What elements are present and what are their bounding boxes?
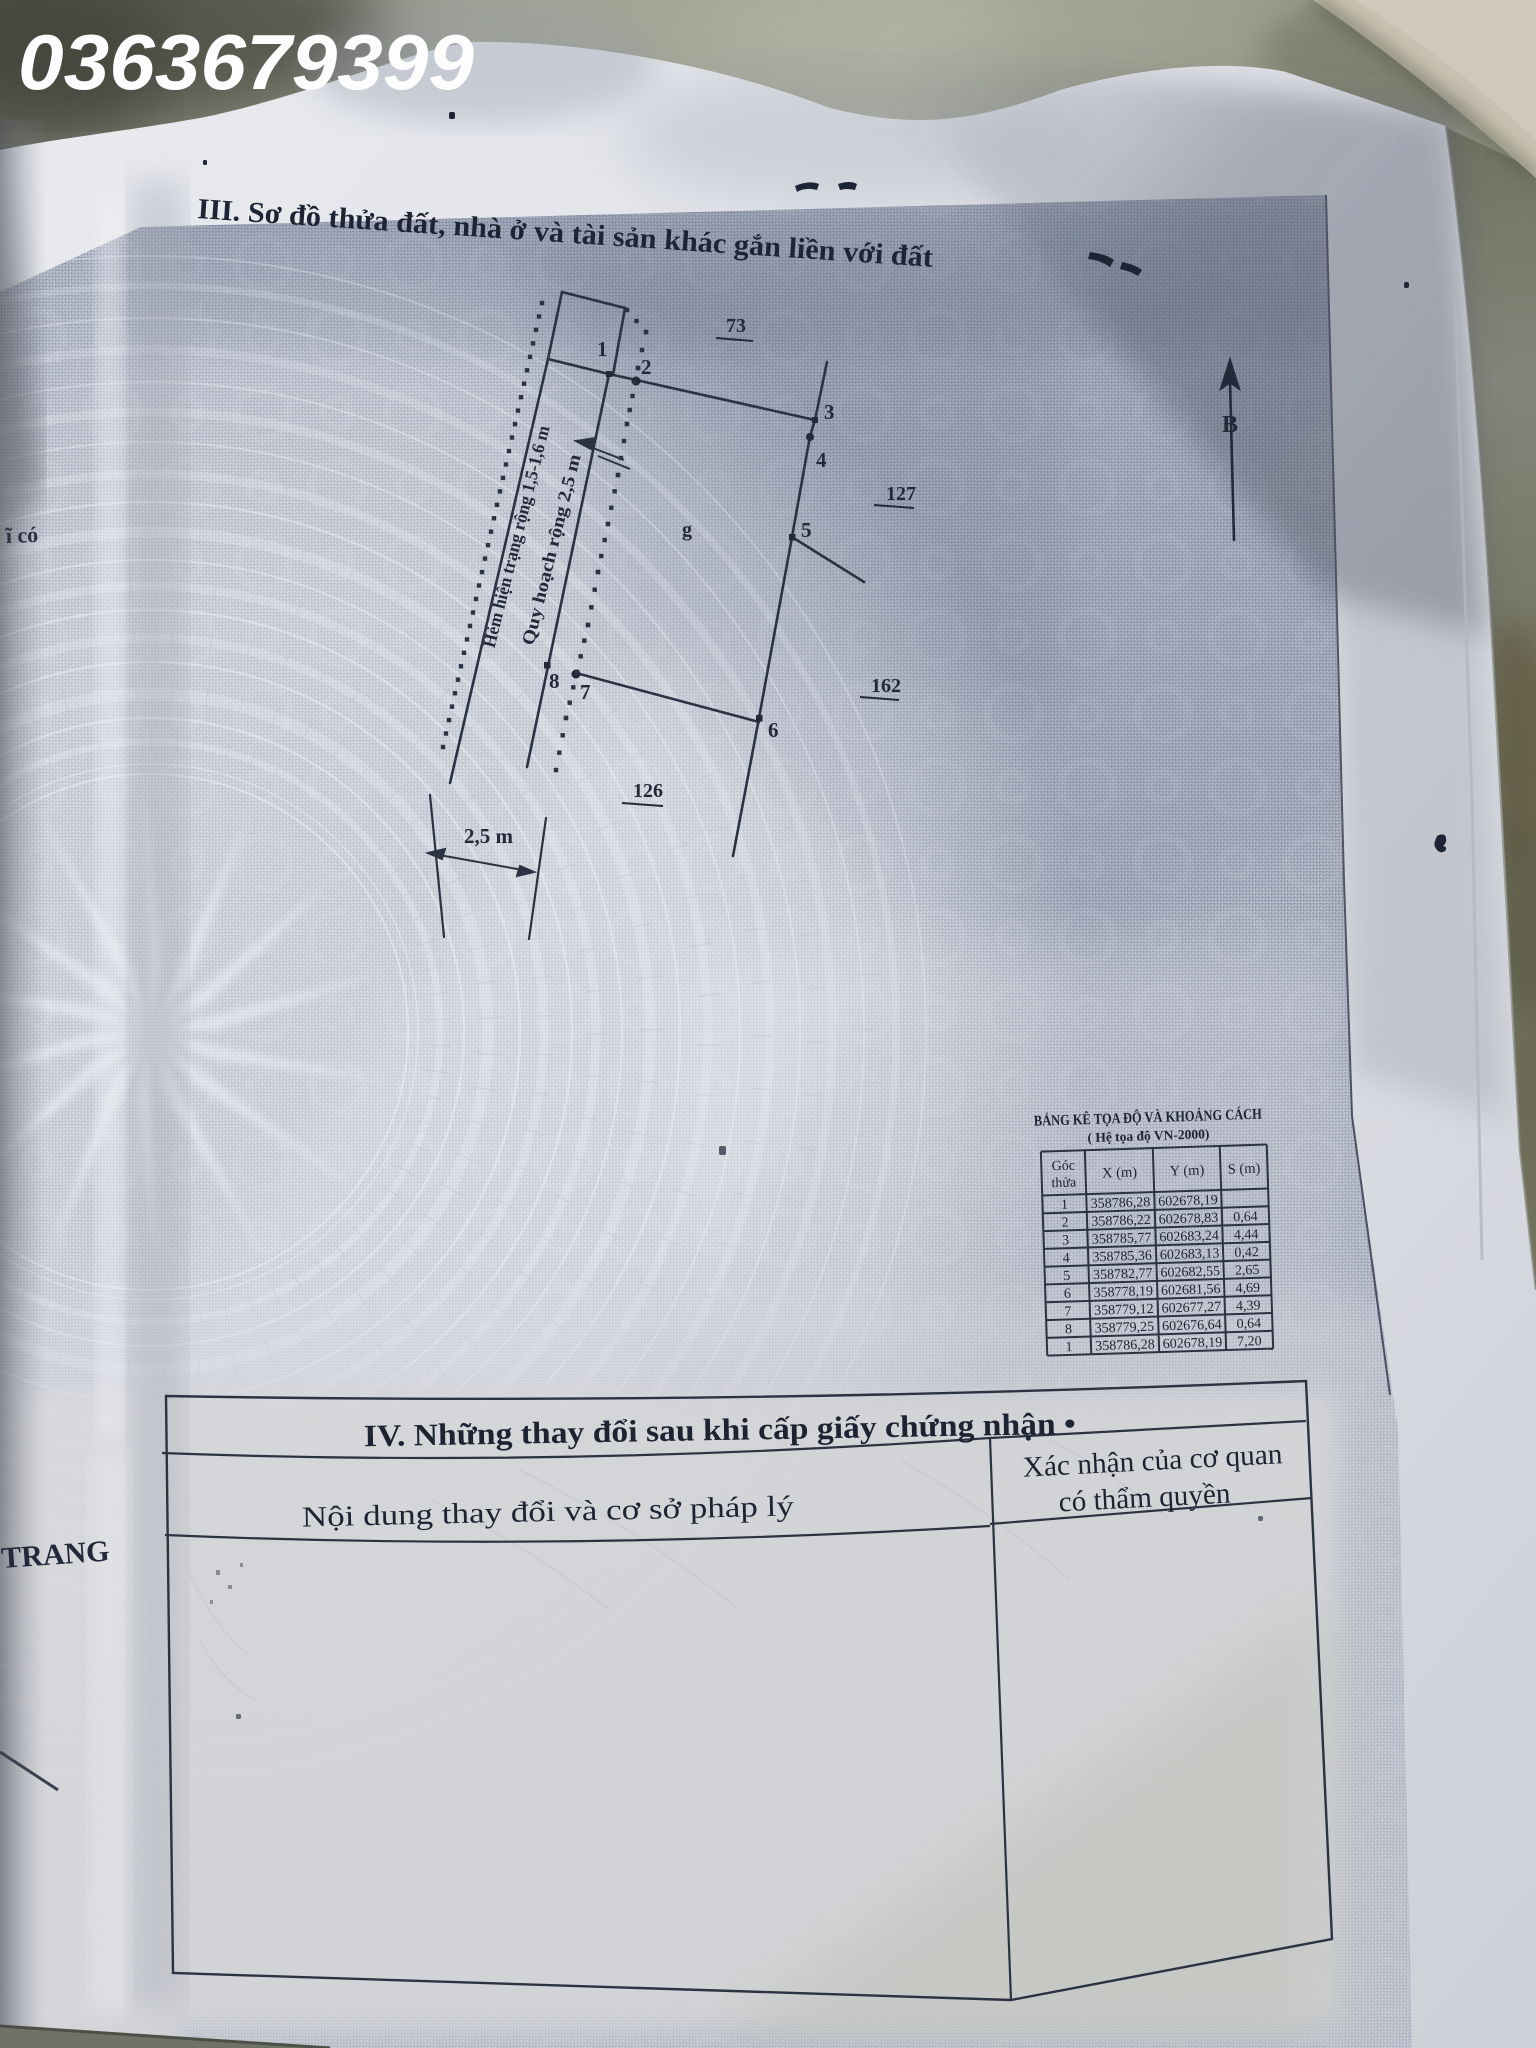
svg-text:602682,55: 602682,55	[1160, 1264, 1220, 1281]
svg-text:B: B	[1222, 412, 1238, 438]
svg-text:162: 162	[871, 675, 901, 697]
svg-text:602683,24: 602683,24	[1159, 1229, 1219, 1246]
svg-text:3: 3	[1062, 1233, 1069, 1248]
svg-text:6: 6	[768, 718, 779, 742]
svg-text:3: 3	[824, 400, 835, 424]
svg-text:0363679399: 0363679399	[18, 18, 475, 106]
svg-text:602678,83: 602678,83	[1159, 1211, 1219, 1228]
svg-text:602678,19: 602678,19	[1162, 1335, 1222, 1352]
svg-text:thửa: thửa	[1051, 1175, 1077, 1191]
svg-text:S (m): S (m)	[1227, 1161, 1260, 1178]
svg-text:358785,77: 358785,77	[1092, 1231, 1152, 1248]
svg-text:358782,77: 358782,77	[1093, 1266, 1153, 1283]
svg-text:4,44: 4,44	[1234, 1227, 1259, 1243]
svg-text:358786,22: 358786,22	[1091, 1213, 1151, 1230]
svg-text:358785,36: 358785,36	[1092, 1249, 1152, 1266]
svg-text:7: 7	[580, 680, 591, 704]
svg-text:7: 7	[1064, 1304, 1071, 1319]
svg-text:1: 1	[1061, 1198, 1068, 1213]
svg-text:602681,56: 602681,56	[1161, 1282, 1221, 1299]
svg-text:4: 4	[1062, 1251, 1069, 1266]
svg-text:ĩ có: ĩ có	[4, 522, 38, 548]
svg-text:5: 5	[801, 518, 812, 542]
svg-text:602683,13: 602683,13	[1160, 1246, 1220, 1263]
svg-text:5: 5	[1063, 1269, 1070, 1284]
svg-text:7,20: 7,20	[1237, 1334, 1262, 1350]
svg-text:0,42: 0,42	[1234, 1245, 1259, 1261]
svg-text:358786,28: 358786,28	[1095, 1337, 1155, 1354]
svg-text:0,64: 0,64	[1236, 1316, 1261, 1332]
svg-text:Góc: Góc	[1051, 1159, 1075, 1175]
svg-text:4,39: 4,39	[1236, 1299, 1261, 1315]
svg-text:1: 1	[1065, 1340, 1072, 1355]
svg-text:Y (m): Y (m)	[1170, 1162, 1205, 1179]
svg-text:4: 4	[816, 448, 827, 472]
svg-text:602677,27: 602677,27	[1161, 1300, 1221, 1317]
svg-text:1: 1	[597, 337, 608, 361]
svg-text:358779,12: 358779,12	[1094, 1302, 1154, 1319]
svg-text:602678,19: 602678,19	[1158, 1193, 1218, 1210]
svg-text:2: 2	[1061, 1216, 1068, 1231]
svg-text:73: 73	[726, 315, 746, 337]
svg-text:358778,19: 358778,19	[1093, 1284, 1153, 1301]
svg-text:8: 8	[549, 669, 560, 693]
svg-text:358786,28: 358786,28	[1091, 1195, 1151, 1212]
svg-text:4,69: 4,69	[1235, 1281, 1260, 1297]
svg-text:358779,25: 358779,25	[1094, 1320, 1154, 1337]
svg-text:2,5 m: 2,5 m	[464, 824, 514, 848]
svg-text:127: 127	[886, 483, 916, 505]
svg-text:8: 8	[1065, 1322, 1072, 1337]
svg-text:X (m): X (m)	[1102, 1165, 1138, 1182]
svg-text:2: 2	[641, 355, 652, 379]
svg-text:126: 126	[633, 780, 663, 802]
svg-text:602676,64: 602676,64	[1162, 1318, 1222, 1335]
svg-text:0,64: 0,64	[1233, 1210, 1258, 1226]
svg-text:2,65: 2,65	[1235, 1263, 1260, 1279]
svg-text:6: 6	[1064, 1287, 1071, 1302]
svg-text:g: g	[682, 519, 692, 541]
